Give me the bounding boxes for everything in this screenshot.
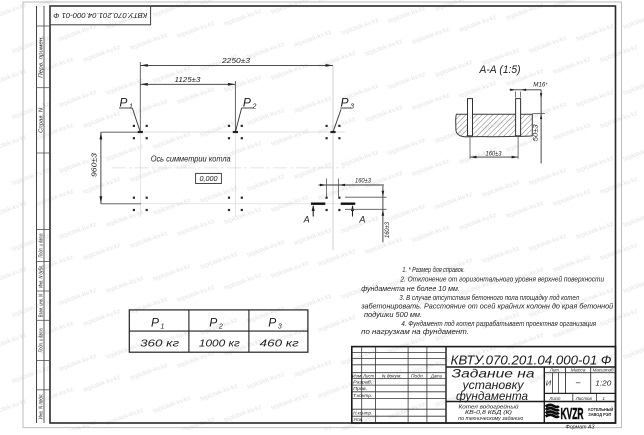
- svg-text:P: P: [119, 95, 127, 109]
- svg-text:1. * Размер для справок.: 1. * Размер для справок.: [402, 265, 465, 274]
- svg-text:Подп.: Подп.: [411, 374, 424, 379]
- svg-text:Подп. и дата: Подп. и дата: [39, 328, 45, 352]
- svg-text:Масса: Масса: [571, 368, 586, 373]
- svg-text:1000 кг: 1000 кг: [199, 339, 240, 350]
- svg-text:по техническому заданию: по техническому заданию: [458, 416, 523, 422]
- svg-text:2250±3: 2250±3: [221, 58, 250, 65]
- svg-text:Ось симметрии котла: Ось симметрии котла: [151, 155, 232, 164]
- svg-text:160±3: 160±3: [384, 221, 391, 238]
- svg-text:P: P: [151, 315, 159, 329]
- svg-text:Листов: Листов: [575, 396, 593, 401]
- svg-text:Справ. N: Справ. N: [39, 107, 45, 132]
- svg-text:КВТУ.070.201.04.000-01 Ф: КВТУ.070.201.04.000-01 Ф: [53, 11, 147, 20]
- svg-text:P: P: [268, 315, 276, 329]
- svg-text:2: 2: [252, 103, 257, 110]
- svg-text:Пров.: Пров.: [353, 386, 367, 391]
- svg-text:Инв. N подл.: Инв. N подл.: [39, 393, 45, 419]
- svg-text:фундамента не более 10 мм.: фундамента не более 10 мм.: [361, 284, 460, 293]
- svg-text:Т.контр.: Т.контр.: [353, 393, 372, 398]
- svg-text:А: А: [303, 214, 310, 224]
- svg-text:ЗАВОД РЭП: ЗАВОД РЭП: [588, 412, 611, 417]
- svg-text:KVZR: KVZR: [561, 406, 584, 423]
- svg-text:P: P: [341, 95, 349, 109]
- svg-text:1:20: 1:20: [595, 379, 612, 388]
- svg-text:Дата: Дата: [430, 374, 442, 379]
- svg-text:подушки 500 мм.: подушки 500 мм.: [364, 310, 422, 319]
- svg-text:2: 2: [218, 323, 223, 330]
- svg-text:–: –: [575, 378, 581, 387]
- svg-text:2. Отклонение от горизонтально: 2. Отклонение от горизонтального уровня …: [400, 275, 605, 284]
- svg-text:фундамента: фундамента: [456, 389, 528, 403]
- svg-text:1: 1: [602, 396, 605, 401]
- svg-text:Изм: Изм: [352, 374, 362, 379]
- svg-text:Подп. и дата: Подп. и дата: [39, 233, 45, 257]
- svg-text:Лист: Лист: [362, 374, 374, 379]
- svg-text:160±3: 160±3: [355, 178, 372, 185]
- svg-text:1125±3: 1125±3: [175, 77, 201, 84]
- svg-text:Лит.: Лит.: [549, 368, 560, 373]
- svg-text:P: P: [243, 95, 251, 109]
- svg-text:P: P: [209, 315, 217, 329]
- svg-text:360 кг: 360 кг: [140, 339, 179, 350]
- svg-text:50±3: 50±3: [533, 124, 540, 141]
- svg-text:1: 1: [161, 323, 165, 330]
- svg-text:Взам. инв. N: Взам. инв. N: [39, 294, 45, 317]
- svg-text:Н.контр.: Н.контр.: [353, 410, 372, 415]
- svg-text:М16*: М16*: [533, 82, 548, 89]
- svg-text:А-А (1:5): А-А (1:5): [479, 64, 521, 76]
- svg-text:И: И: [546, 379, 552, 388]
- svg-text:Утв.: Утв.: [353, 417, 363, 422]
- svg-text:Разраб.: Разраб.: [353, 380, 372, 385]
- svg-text:Перв. примен.: Перв. примен.: [39, 36, 45, 78]
- svg-text:Лист: Лист: [548, 396, 560, 401]
- svg-text:3: 3: [350, 103, 354, 110]
- svg-text:КВТУ.070.201.04.000-01 Ф: КВТУ.070.201.04.000-01 Ф: [451, 352, 612, 367]
- svg-text:3: 3: [278, 323, 282, 330]
- svg-text:160±3: 160±3: [486, 151, 502, 158]
- svg-text:3. В случае отсутствия бетонно: 3. В случае отсутствия бетонного пола пл…: [399, 293, 579, 302]
- svg-text:0,000: 0,000: [200, 174, 218, 183]
- svg-text:Формат А3: Формат А3: [566, 424, 595, 430]
- svg-text:Инв. N дубл.: Инв. N дубл.: [39, 265, 45, 288]
- svg-text:460 кг: 460 кг: [260, 339, 299, 350]
- svg-text:960±3: 960±3: [92, 153, 99, 177]
- svg-text:Масштаб: Масштаб: [593, 368, 614, 373]
- svg-text:N докум.: N докум.: [382, 374, 402, 379]
- svg-text:А: А: [358, 214, 365, 224]
- svg-text:по нагрузкам на фундамент.: по нагрузкам на фундамент.: [361, 327, 469, 336]
